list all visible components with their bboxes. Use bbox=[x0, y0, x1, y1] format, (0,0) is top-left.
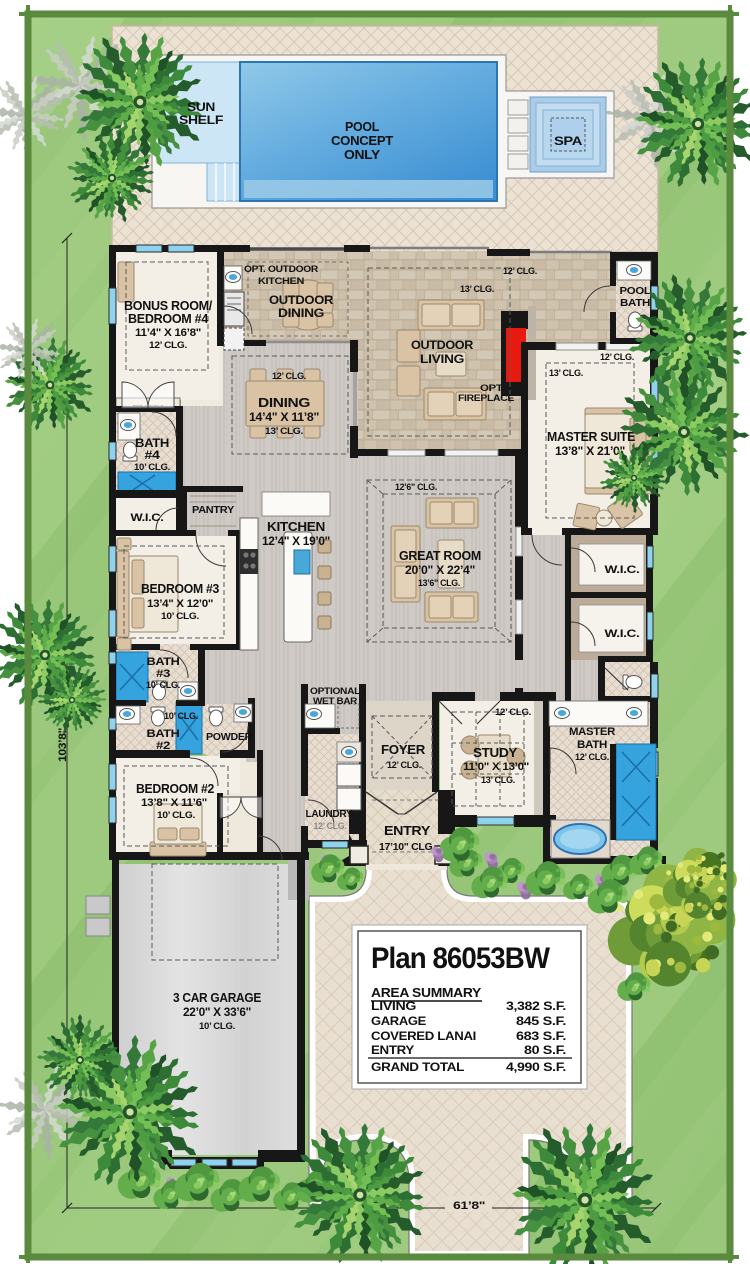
svg-text:GREAT ROOM: GREAT ROOM bbox=[399, 548, 481, 563]
svg-text:AREA SUMMARY: AREA SUMMARY bbox=[371, 985, 482, 1000]
svg-text:BATH: BATH bbox=[620, 297, 650, 309]
svg-text:DINING: DINING bbox=[278, 308, 324, 320]
svg-text:683 S.F.: 683 S.F. bbox=[516, 1029, 566, 1043]
svg-text:BATH: BATH bbox=[147, 656, 180, 668]
svg-text:GRAND TOTAL: GRAND TOTAL bbox=[371, 1060, 464, 1074]
svg-text:12’6" CLG.: 12’6" CLG. bbox=[395, 482, 437, 493]
svg-text:BONUS ROOM/: BONUS ROOM/ bbox=[124, 299, 213, 313]
svg-text:13’ CLG.: 13’ CLG. bbox=[481, 775, 515, 786]
svg-text:11’0" X 13’0": 11’0" X 13’0" bbox=[463, 761, 529, 773]
svg-text:12’ CLG.: 12’ CLG. bbox=[503, 266, 537, 277]
svg-text:12’4" X 19’0": 12’4" X 19’0" bbox=[262, 536, 330, 548]
svg-text:GARAGE: GARAGE bbox=[371, 1014, 426, 1028]
svg-text:LIVING: LIVING bbox=[420, 352, 464, 366]
svg-text:845 S.F.: 845 S.F. bbox=[516, 1014, 566, 1028]
svg-text:103’8": 103’8" bbox=[57, 728, 69, 762]
svg-text:13’4" X 12’0": 13’4" X 12’0" bbox=[147, 598, 213, 610]
svg-text:22’0" X 33’6": 22’0" X 33’6" bbox=[183, 1007, 251, 1019]
svg-text:LAUNDRY: LAUNDRY bbox=[306, 808, 353, 820]
svg-text:#2: #2 bbox=[156, 740, 170, 752]
svg-text:BATH: BATH bbox=[577, 739, 607, 751]
svg-text:STUDY: STUDY bbox=[473, 746, 518, 760]
svg-text:ENTRY: ENTRY bbox=[371, 1043, 414, 1057]
svg-text:MASTER: MASTER bbox=[569, 726, 615, 738]
svg-text:17’10" CLG.: 17’10" CLG. bbox=[379, 842, 436, 853]
svg-text:13’8" X 11’6": 13’8" X 11’6" bbox=[141, 797, 207, 809]
svg-text:SPA: SPA bbox=[554, 134, 583, 148]
svg-text:3 CAR GARAGE: 3 CAR GARAGE bbox=[173, 991, 261, 1005]
svg-text:13’6" CLG.: 13’6" CLG. bbox=[418, 578, 460, 589]
svg-text:OUTDOOR: OUTDOOR bbox=[411, 338, 474, 352]
svg-text:#4: #4 bbox=[145, 450, 161, 462]
svg-text:BEDROOM #4: BEDROOM #4 bbox=[128, 312, 208, 326]
svg-text:12’ CLG.: 12’ CLG. bbox=[149, 340, 187, 351]
svg-text:CONCEPT: CONCEPT bbox=[331, 134, 394, 148]
svg-text:10’ CLG.: 10’ CLG. bbox=[157, 810, 195, 821]
svg-text:ONLY: ONLY bbox=[344, 148, 381, 162]
svg-text:POOL: POOL bbox=[620, 285, 652, 297]
svg-text:10’ CLG.: 10’ CLG. bbox=[161, 611, 199, 622]
svg-text:BEDROOM #2: BEDROOM #2 bbox=[136, 782, 214, 796]
svg-text:4,990 S.F.: 4,990 S.F. bbox=[506, 1060, 566, 1074]
svg-text:80 S.F.: 80 S.F. bbox=[524, 1043, 566, 1057]
svg-text:61’8": 61’8" bbox=[453, 1200, 485, 1212]
svg-text:12’ CLG.: 12’ CLG. bbox=[314, 821, 347, 831]
svg-text:10’ CLG.: 10’ CLG. bbox=[134, 462, 170, 473]
svg-text:13’ CLG.: 13’ CLG. bbox=[460, 284, 494, 295]
svg-text:20’0" X 22’4": 20’0" X 22’4" bbox=[405, 565, 475, 577]
svg-text:12’ CLG.: 12’ CLG. bbox=[495, 707, 531, 718]
svg-text:COVERED LANAI: COVERED LANAI bbox=[371, 1029, 476, 1043]
svg-text:BATH: BATH bbox=[135, 438, 169, 450]
svg-text:FOYER: FOYER bbox=[381, 743, 425, 757]
svg-text:ENTRY: ENTRY bbox=[384, 824, 431, 838]
svg-text:FIREPLACE: FIREPLACE bbox=[458, 393, 514, 404]
svg-text:BEDROOM #3: BEDROOM #3 bbox=[141, 582, 219, 596]
svg-text:3,382 S.F.: 3,382 S.F. bbox=[506, 999, 566, 1013]
svg-text:SUN: SUN bbox=[187, 100, 215, 114]
svg-text:W.I.C.: W.I.C. bbox=[605, 628, 640, 640]
svg-text:LIVING: LIVING bbox=[371, 999, 416, 1013]
svg-text:BATH: BATH bbox=[147, 728, 180, 740]
svg-text:12’ CLG.: 12’ CLG. bbox=[272, 371, 306, 382]
svg-text:12’ CLG.: 12’ CLG. bbox=[575, 752, 609, 763]
svg-text:#3: #3 bbox=[156, 668, 170, 680]
svg-text:KITCHEN: KITCHEN bbox=[267, 519, 325, 534]
svg-text:10’ CLG.: 10’ CLG. bbox=[199, 1021, 235, 1032]
svg-text:DINING: DINING bbox=[258, 395, 310, 410]
svg-text:10’ CLG.: 10’ CLG. bbox=[164, 711, 198, 721]
svg-text:Plan 86053BW: Plan 86053BW bbox=[371, 942, 551, 975]
svg-text:POWDER: POWDER bbox=[206, 731, 253, 743]
svg-text:14’4" X 11’8": 14’4" X 11’8" bbox=[249, 412, 319, 424]
svg-text:OUTDOOR: OUTDOOR bbox=[269, 295, 334, 307]
svg-text:13’ CLG.: 13’ CLG. bbox=[265, 426, 303, 437]
svg-text:SHELF: SHELF bbox=[179, 113, 223, 127]
svg-text:13’8" X 21’0": 13’8" X 21’0" bbox=[555, 446, 625, 458]
svg-text:12’ CLG.: 12’ CLG. bbox=[387, 760, 421, 771]
svg-text:PANTRY: PANTRY bbox=[192, 504, 234, 516]
svg-text:POOL: POOL bbox=[345, 120, 380, 134]
svg-text:11’4" X 16’8": 11’4" X 16’8" bbox=[135, 327, 201, 339]
svg-text:MASTER SUITE: MASTER SUITE bbox=[547, 429, 636, 444]
svg-text:KITCHEN: KITCHEN bbox=[258, 276, 304, 287]
svg-text:WET BAR: WET BAR bbox=[313, 696, 357, 707]
svg-text:10’ CLG.: 10’ CLG. bbox=[146, 680, 180, 690]
svg-text:W.I.C.: W.I.C. bbox=[131, 512, 164, 524]
svg-text:12’ CLG.: 12’ CLG. bbox=[600, 352, 634, 363]
svg-text:13’ CLG.: 13’ CLG. bbox=[549, 368, 583, 379]
svg-text:OPT. OUTDOOR: OPT. OUTDOOR bbox=[244, 264, 318, 275]
svg-text:W.I.C.: W.I.C. bbox=[605, 564, 640, 576]
